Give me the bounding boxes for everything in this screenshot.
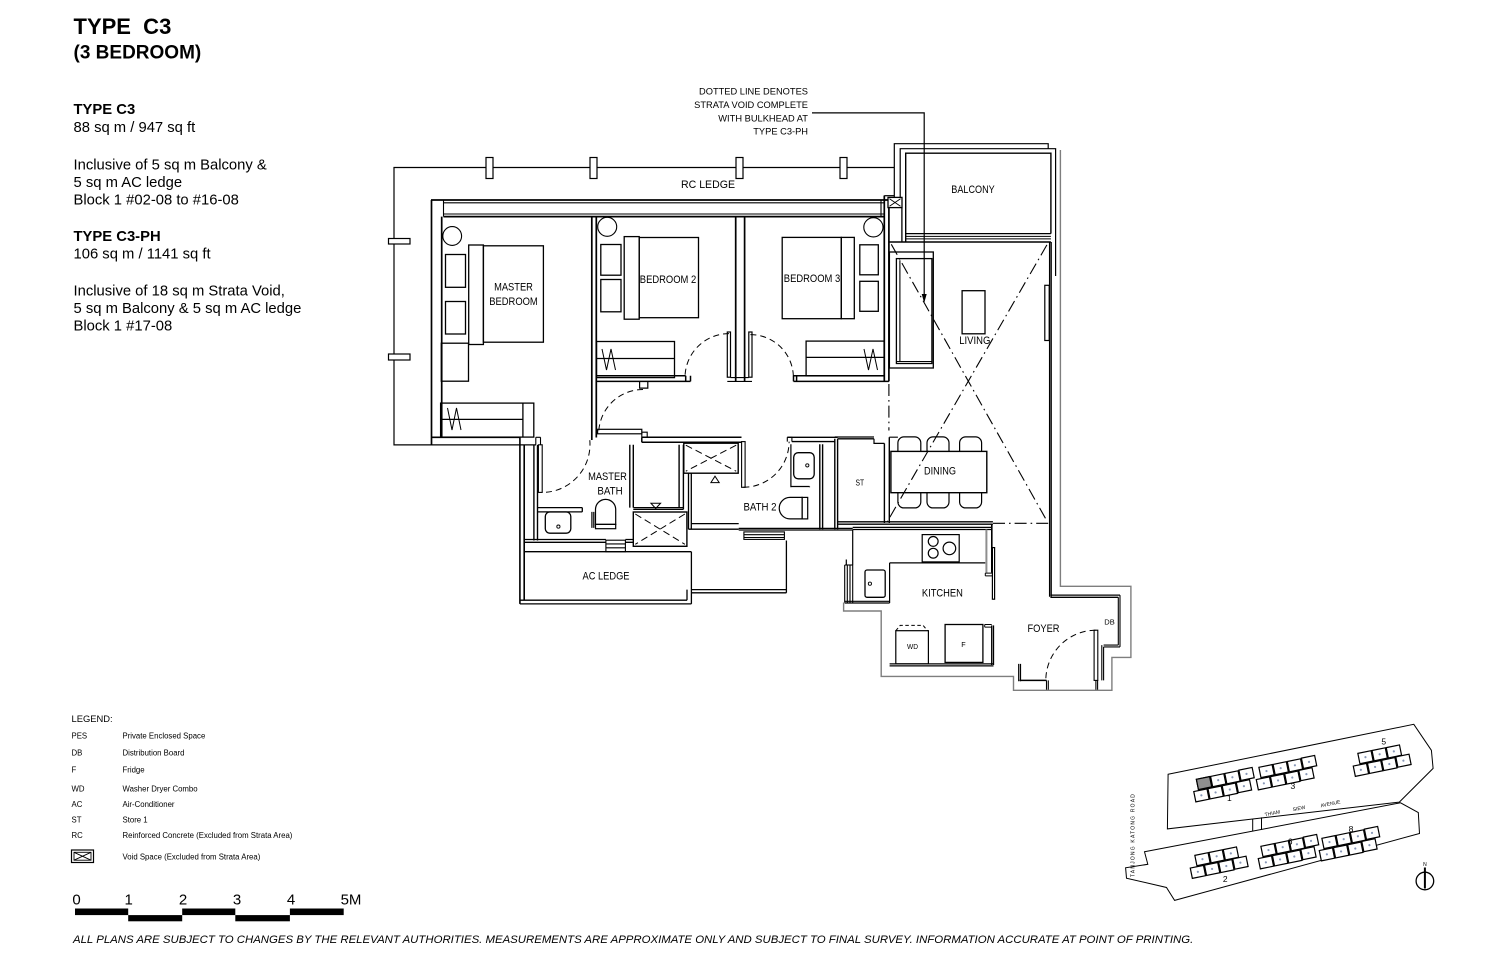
svg-text:LEGEND:: LEGEND: xyxy=(72,713,113,724)
svg-text:1: 1 xyxy=(1227,793,1232,803)
svg-text:MASTER: MASTER xyxy=(494,282,533,294)
svg-text:DOTTED LINE DENOTES: DOTTED LINE DENOTES xyxy=(699,87,808,97)
svg-text:88 sq m / 947 sq ft: 88 sq m / 947 sq ft xyxy=(74,120,196,136)
svg-text:ST: ST xyxy=(72,816,82,825)
svg-text:4: 4 xyxy=(287,892,295,909)
svg-text:3: 3 xyxy=(233,892,241,909)
svg-text:TYPE C3: TYPE C3 xyxy=(74,14,172,39)
svg-text:WD: WD xyxy=(907,642,918,651)
svg-text:5M: 5M xyxy=(341,892,362,909)
svg-text:F: F xyxy=(72,766,77,775)
svg-text:FOYER: FOYER xyxy=(1028,623,1060,635)
svg-text:TANJONG KATONG ROAD: TANJONG KATONG ROAD xyxy=(1130,793,1136,877)
svg-text:TYPE C3-PH: TYPE C3-PH xyxy=(74,229,161,245)
svg-text:RC: RC xyxy=(72,831,84,840)
svg-text:Fridge: Fridge xyxy=(123,766,145,775)
svg-text:TYPE C3: TYPE C3 xyxy=(74,102,136,118)
svg-text:AC: AC xyxy=(72,800,83,809)
svg-text:RC LEDGE: RC LEDGE xyxy=(681,179,735,191)
svg-text:Private Enclosed Space: Private Enclosed Space xyxy=(123,731,206,740)
svg-text:Reinforced Concrete (Excluded: Reinforced Concrete (Excluded from Strat… xyxy=(123,831,293,840)
svg-text:STRATA VOID COMPLETE: STRATA VOID COMPLETE xyxy=(694,100,808,110)
svg-text:Inclusive of 5 sq m Balcony &: Inclusive of 5 sq m Balcony & xyxy=(74,157,267,173)
svg-text:LIVING: LIVING xyxy=(959,335,990,347)
svg-text:0: 0 xyxy=(72,892,80,909)
svg-text:DB: DB xyxy=(72,748,83,757)
svg-text:Void Space (Excluded from Stra: Void Space (Excluded from Strata Area) xyxy=(123,852,261,861)
svg-text:BATH: BATH xyxy=(597,485,622,497)
svg-text:DB: DB xyxy=(1104,618,1115,627)
svg-text:5: 5 xyxy=(1381,737,1386,747)
svg-text:BALCONY: BALCONY xyxy=(951,184,995,196)
svg-text:ST: ST xyxy=(856,479,865,488)
svg-text:Block 1 #17-08: Block 1 #17-08 xyxy=(74,318,173,334)
svg-text:ALL PLANS ARE SUBJECT TO CHANG: ALL PLANS ARE SUBJECT TO CHANGES BY THE … xyxy=(72,934,1193,946)
svg-text:BEDROOM: BEDROOM xyxy=(489,296,538,308)
svg-text:AC LEDGE: AC LEDGE xyxy=(583,570,630,582)
svg-text:(3 BEDROOM): (3 BEDROOM) xyxy=(74,43,202,64)
svg-text:F: F xyxy=(961,640,966,649)
svg-text:MASTER: MASTER xyxy=(588,471,627,483)
svg-text:TYPE C3-PH: TYPE C3-PH xyxy=(753,126,808,136)
svg-text:DINING: DINING xyxy=(924,465,956,477)
svg-text:106 sq m / 1141 sq ft: 106 sq m / 1141 sq ft xyxy=(74,246,211,262)
svg-text:PES: PES xyxy=(72,731,88,740)
svg-text:2: 2 xyxy=(179,892,187,909)
svg-text:BATH 2: BATH 2 xyxy=(744,501,777,513)
svg-text:5 sq m Balcony & 5 sq m AC led: 5 sq m Balcony & 5 sq m AC ledge xyxy=(74,301,302,317)
svg-text:Block 1 #02-08 to #16-08: Block 1 #02-08 to #16-08 xyxy=(74,192,239,208)
svg-text:Air-Conditioner: Air-Conditioner xyxy=(123,800,175,809)
svg-text:1: 1 xyxy=(125,892,133,909)
svg-text:Washer Dryer Combo: Washer Dryer Combo xyxy=(123,784,199,793)
svg-text:WITH BULKHEAD AT: WITH BULKHEAD AT xyxy=(718,113,808,123)
svg-text:BEDROOM 2: BEDROOM 2 xyxy=(640,274,696,286)
svg-text:N: N xyxy=(1423,862,1427,868)
svg-text:Store 1: Store 1 xyxy=(123,816,148,825)
svg-text:3: 3 xyxy=(1291,781,1296,791)
svg-text:6: 6 xyxy=(1288,836,1293,846)
svg-text:8: 8 xyxy=(1349,824,1354,834)
svg-text:Distribution Board: Distribution Board xyxy=(123,748,185,757)
svg-text:Inclusive of 18 sq m Strata Vo: Inclusive of 18 sq m Strata Void, xyxy=(74,283,285,299)
svg-text:KITCHEN: KITCHEN xyxy=(922,588,963,600)
svg-text:2: 2 xyxy=(1223,874,1228,884)
svg-text:5 sq m AC ledge: 5 sq m AC ledge xyxy=(74,175,183,191)
svg-text:WD: WD xyxy=(72,784,85,793)
svg-text:BEDROOM 3: BEDROOM 3 xyxy=(784,273,840,285)
